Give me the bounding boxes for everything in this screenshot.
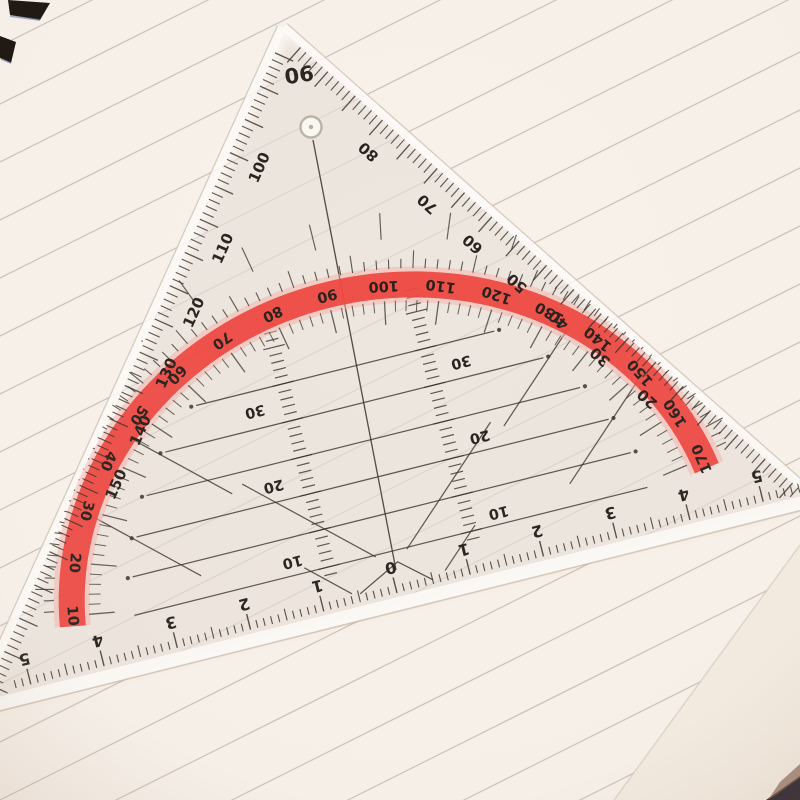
- arc-degree-label: 20: [65, 552, 83, 573]
- arc-degree-label: 10: [63, 605, 81, 626]
- row-end-dot: [634, 449, 638, 453]
- row-end-dot: [140, 495, 144, 499]
- apex-label-group: 90: [283, 60, 315, 88]
- row-end-dot: [189, 405, 193, 409]
- photo-scene: 1020301020301020304050607080901001101201…: [0, 0, 800, 800]
- arc-degree-label: 100: [368, 277, 399, 295]
- pivot-hole: [301, 117, 322, 138]
- hole-center: [309, 125, 313, 129]
- row-end-dot: [126, 576, 130, 580]
- row-end-dot: [583, 384, 587, 388]
- apex-degree-label: 90: [283, 60, 315, 88]
- notebook-and-set-square-photo: 1020301020301020304050607080901001101201…: [0, 0, 800, 800]
- row-end-dot: [497, 328, 501, 332]
